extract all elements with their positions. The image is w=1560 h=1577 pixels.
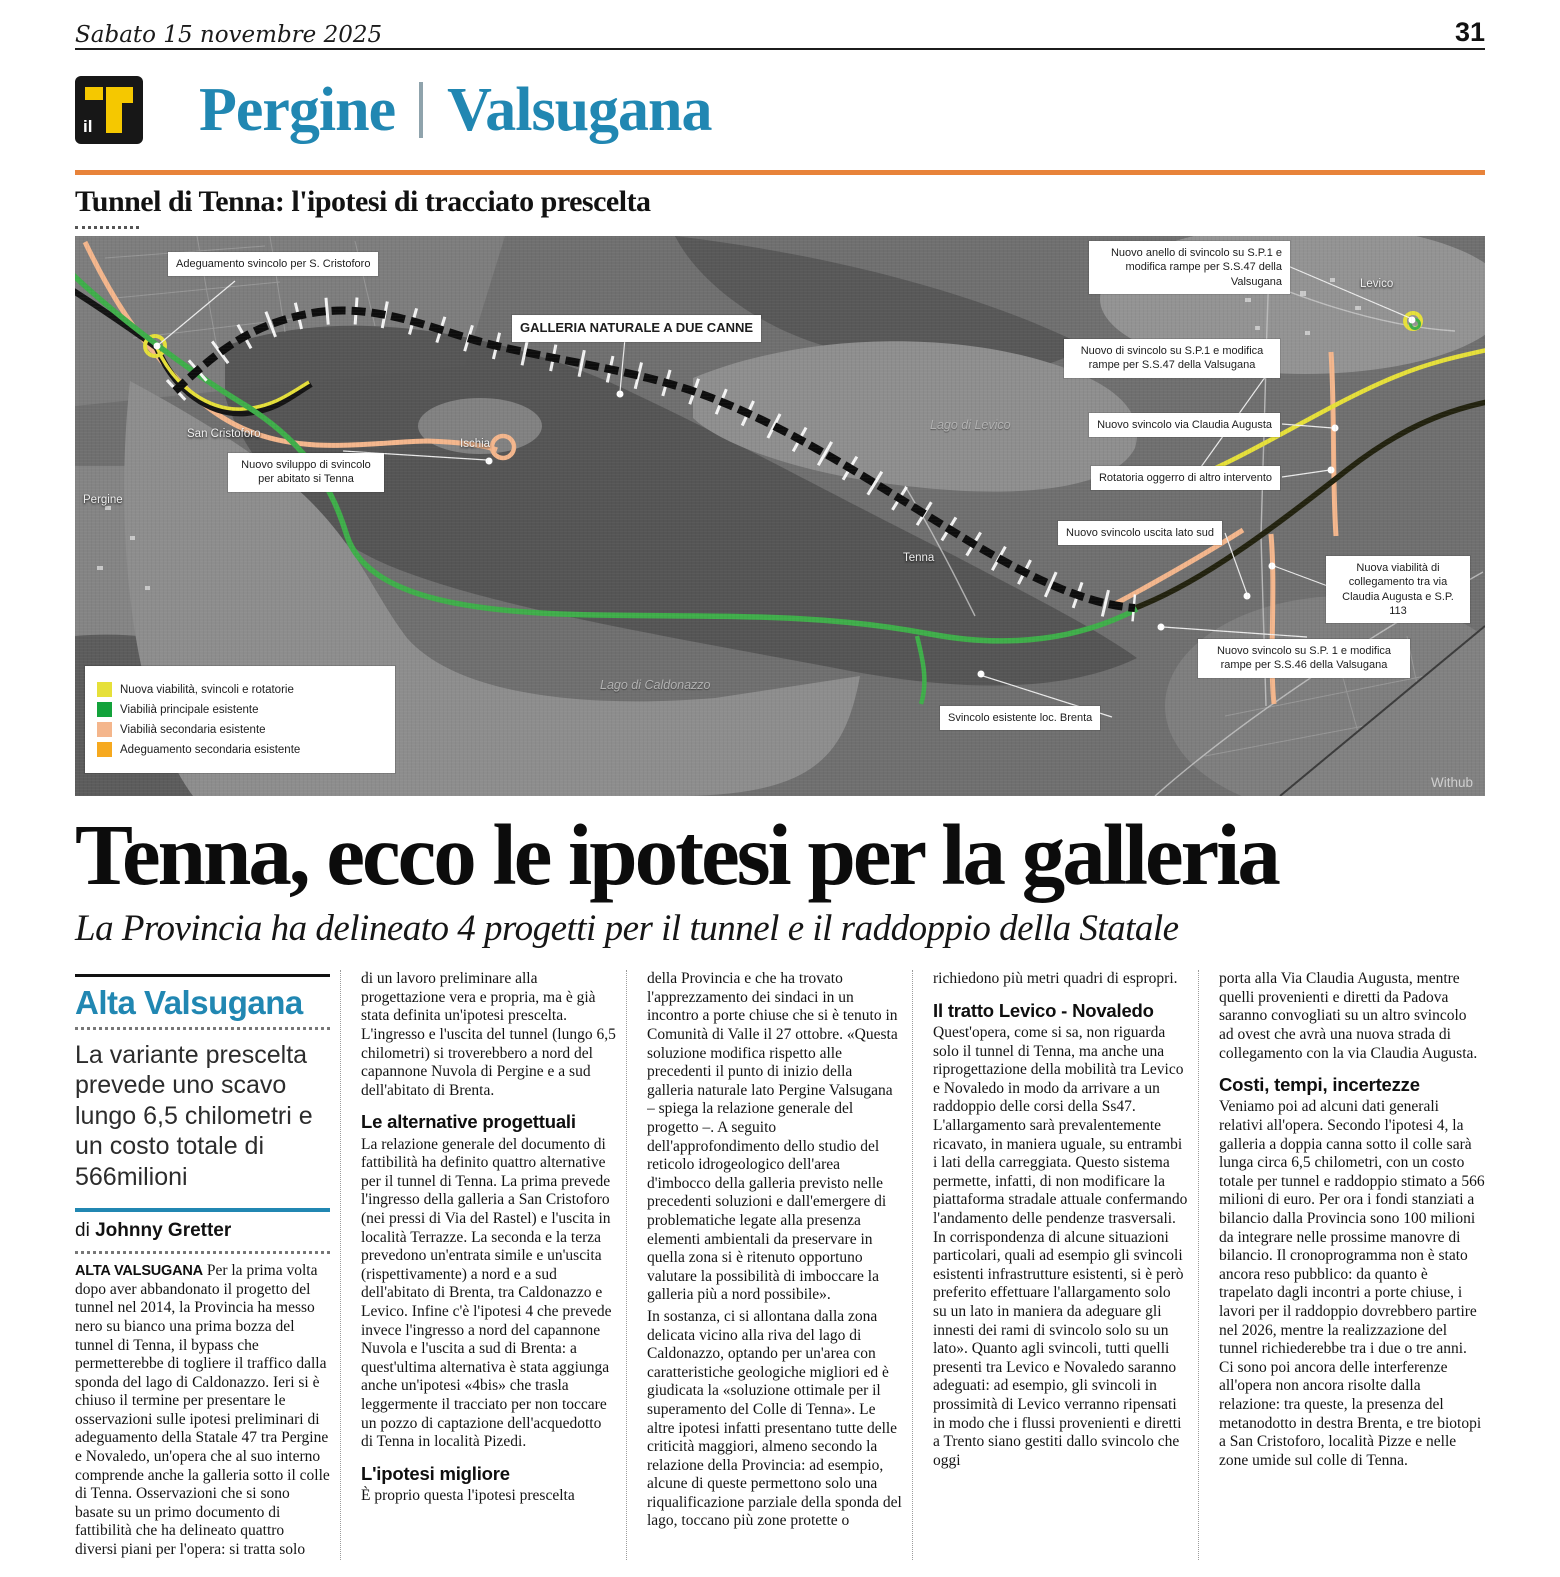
legend-row: Viabilià secondaria esistente (97, 722, 383, 737)
orange-rule (75, 170, 1485, 175)
legend-swatch-principal-existing (97, 702, 112, 717)
legend-row: Viabilià principale esistente (97, 702, 383, 717)
subhead-costi-tempi-incertezze: Costi, tempi, incertezze (1219, 1074, 1485, 1096)
page-number: 31 (1455, 17, 1485, 48)
callout-nuovo-anello-sp1: Nuovo anello di svincolo su S.P.1 e modi… (1089, 241, 1290, 294)
lake-label-levico: Lago di Levico (930, 418, 1011, 432)
paragraph: porta alla Via Claudia Augusta, mentre q… (1219, 970, 1485, 1063)
lead-text: Per la prima volta dopo aver abbandonato… (75, 1262, 330, 1558)
paragraph: Veniamo poi ad alcuni dati generali rela… (1219, 1098, 1485, 1470)
place-label-levico: Levico (1360, 278, 1393, 290)
subhead-ipotesi-migliore: L'ipotesi migliore (361, 1463, 616, 1485)
dotted-rule (75, 1251, 330, 1254)
paragraph: di un lavoro preliminare alla progettazi… (361, 970, 616, 1100)
logo-yellow-bar (85, 87, 103, 100)
legend-label: Viabilià secondaria esistente (120, 724, 266, 736)
section-title-left: Pergine (199, 75, 395, 146)
article-column-3: della Provincia e che ha trovato l'appre… (647, 970, 913, 1560)
newspaper-page: Sabato 15 novembre 2025 31 il Pergine Va… (0, 0, 1560, 1577)
newspaper-logo-icon: il (75, 76, 143, 144)
paragraph: È proprio questa l'ipotesi prescelta (361, 1487, 616, 1506)
callout-sviluppo-svincolo-tenna: Nuovo sviluppo di svincolo per abitato s… (228, 453, 384, 492)
sidebar-section-label: Alta Valsugana (75, 983, 330, 1023)
paragraph: In sostanza, ci si allontana dalla zona … (647, 1308, 902, 1531)
byline-prefix: di (75, 1220, 95, 1241)
paragraph: della Provincia e che ha trovato l'appre… (647, 970, 902, 1305)
lead-label: ALTA VALSUGANA (75, 1263, 203, 1279)
paragraph: ALTA VALSUGANA Per la prima volta dopo a… (75, 1262, 330, 1560)
section-title: Pergine Valsugana (199, 75, 712, 146)
place-label-pergine: Pergine (83, 494, 123, 506)
place-label-tenna: Tenna (903, 552, 934, 564)
paragraph: Quest'opera, come si sa, non riguarda so… (933, 1024, 1188, 1470)
sidebar-top-rule (75, 974, 330, 977)
legend-swatch-secondary-existing (97, 722, 112, 737)
legend-label: Adeguamento secondaria esistente (120, 744, 300, 756)
edition-date: Sabato 15 novembre 2025 (75, 22, 382, 48)
byline-blue-rule (75, 1208, 330, 1212)
legend-swatch-secondary-upgrade (97, 742, 112, 757)
masthead: il Pergine Valsugana (75, 64, 1485, 156)
article-headline: Tenna, ecco le ipotesi per la galleria (75, 812, 1485, 897)
legend-label: Viabilià principale esistente (120, 704, 259, 716)
article-subheadline: La Provincia ha delineato 4 progetti per… (75, 907, 1485, 950)
callout-nuovo-svincolo-sp1-ss47: Nuovo di svincolo su S.P.1 e modifica ra… (1064, 339, 1280, 378)
place-label-ischia: Ischia (460, 438, 490, 450)
paragraph: richiedono più metri quadri di espropri. (933, 970, 1188, 989)
logo-il-text: il (83, 118, 92, 135)
paragraph: La relazione generale del documento di f… (361, 1136, 616, 1452)
place-label-san-cristoforo: San Cristoforo (187, 428, 261, 440)
callout-galleria-naturale: GALLERIA NATURALE A DUE CANNE (512, 315, 761, 342)
byline: di Johnny Gretter (75, 1220, 330, 1243)
article-column-4: richiedono più metri quadri di espropri.… (933, 970, 1199, 1560)
logo-t-cap (106, 87, 133, 103)
article-column-5: porta alla Via Claudia Augusta, mentre q… (1219, 970, 1485, 1560)
callout-rotatoria: Rotatoria oggerro di altro intervento (1091, 466, 1280, 490)
article-body: Alta Valsugana La variante prescelta pre… (75, 970, 1485, 1560)
callout-viabilita-collegamento: Nuova viabilità di collegamento tra via … (1326, 556, 1470, 623)
map-kicker-title: Tunnel di Tenna: l'ipotesi di tracciato … (75, 185, 1485, 219)
section-title-divider (419, 82, 423, 138)
article-column-1: Alta Valsugana La variante prescelta pre… (75, 970, 341, 1560)
legend-row: Nuova viabilità, svincoli e rotatorie (97, 682, 383, 697)
byline-name: Johnny Gretter (95, 1220, 231, 1241)
map-watermark: Withub (1431, 775, 1473, 790)
callout-adeguamento-s-cristoforo: Adeguamento svincolo per S. Cristoforo (168, 252, 378, 276)
callout-svincolo-brenta: Svincolo esistente loc. Brenta (940, 706, 1100, 730)
lake-label-caldonazzo: Lago di Caldonazzo (600, 678, 711, 692)
topbar: Sabato 15 novembre 2025 31 (75, 0, 1485, 50)
subhead-alternative-progettuali: Le alternative progettuali (361, 1111, 616, 1133)
callout-nuovo-svincolo-sp1-ss46: Nuovo svincolo su S.P. 1 e modifica ramp… (1198, 639, 1410, 678)
dotted-rule (75, 1027, 330, 1030)
callout-svincolo-claudia-augusta: Nuovo svincolo via Claudia Augusta (1089, 413, 1280, 437)
callout-uscita-lato-sud: Nuovo svincolo uscita lato sud (1058, 521, 1222, 545)
standfirst: La variante prescelta prevede uno scavo … (75, 1040, 330, 1193)
article-column-2: di un lavoro preliminare alla progettazi… (361, 970, 627, 1560)
kicker-dotted-rule (75, 222, 139, 229)
map-legend: Nuova viabilità, svincoli e rotatorie Vi… (85, 666, 395, 773)
section-title-right: Valsugana (447, 75, 711, 146)
legend-label: Nuova viabilità, svincoli e rotatorie (120, 684, 294, 696)
route-map: Adeguamento svincolo per S. Cristoforo G… (75, 236, 1485, 796)
legend-row: Adeguamento secondaria esistente (97, 742, 383, 757)
legend-swatch-new-viability (97, 682, 112, 697)
subhead-tratto-levico-novaledo: Il tratto Levico - Novaledo (933, 1000, 1188, 1022)
